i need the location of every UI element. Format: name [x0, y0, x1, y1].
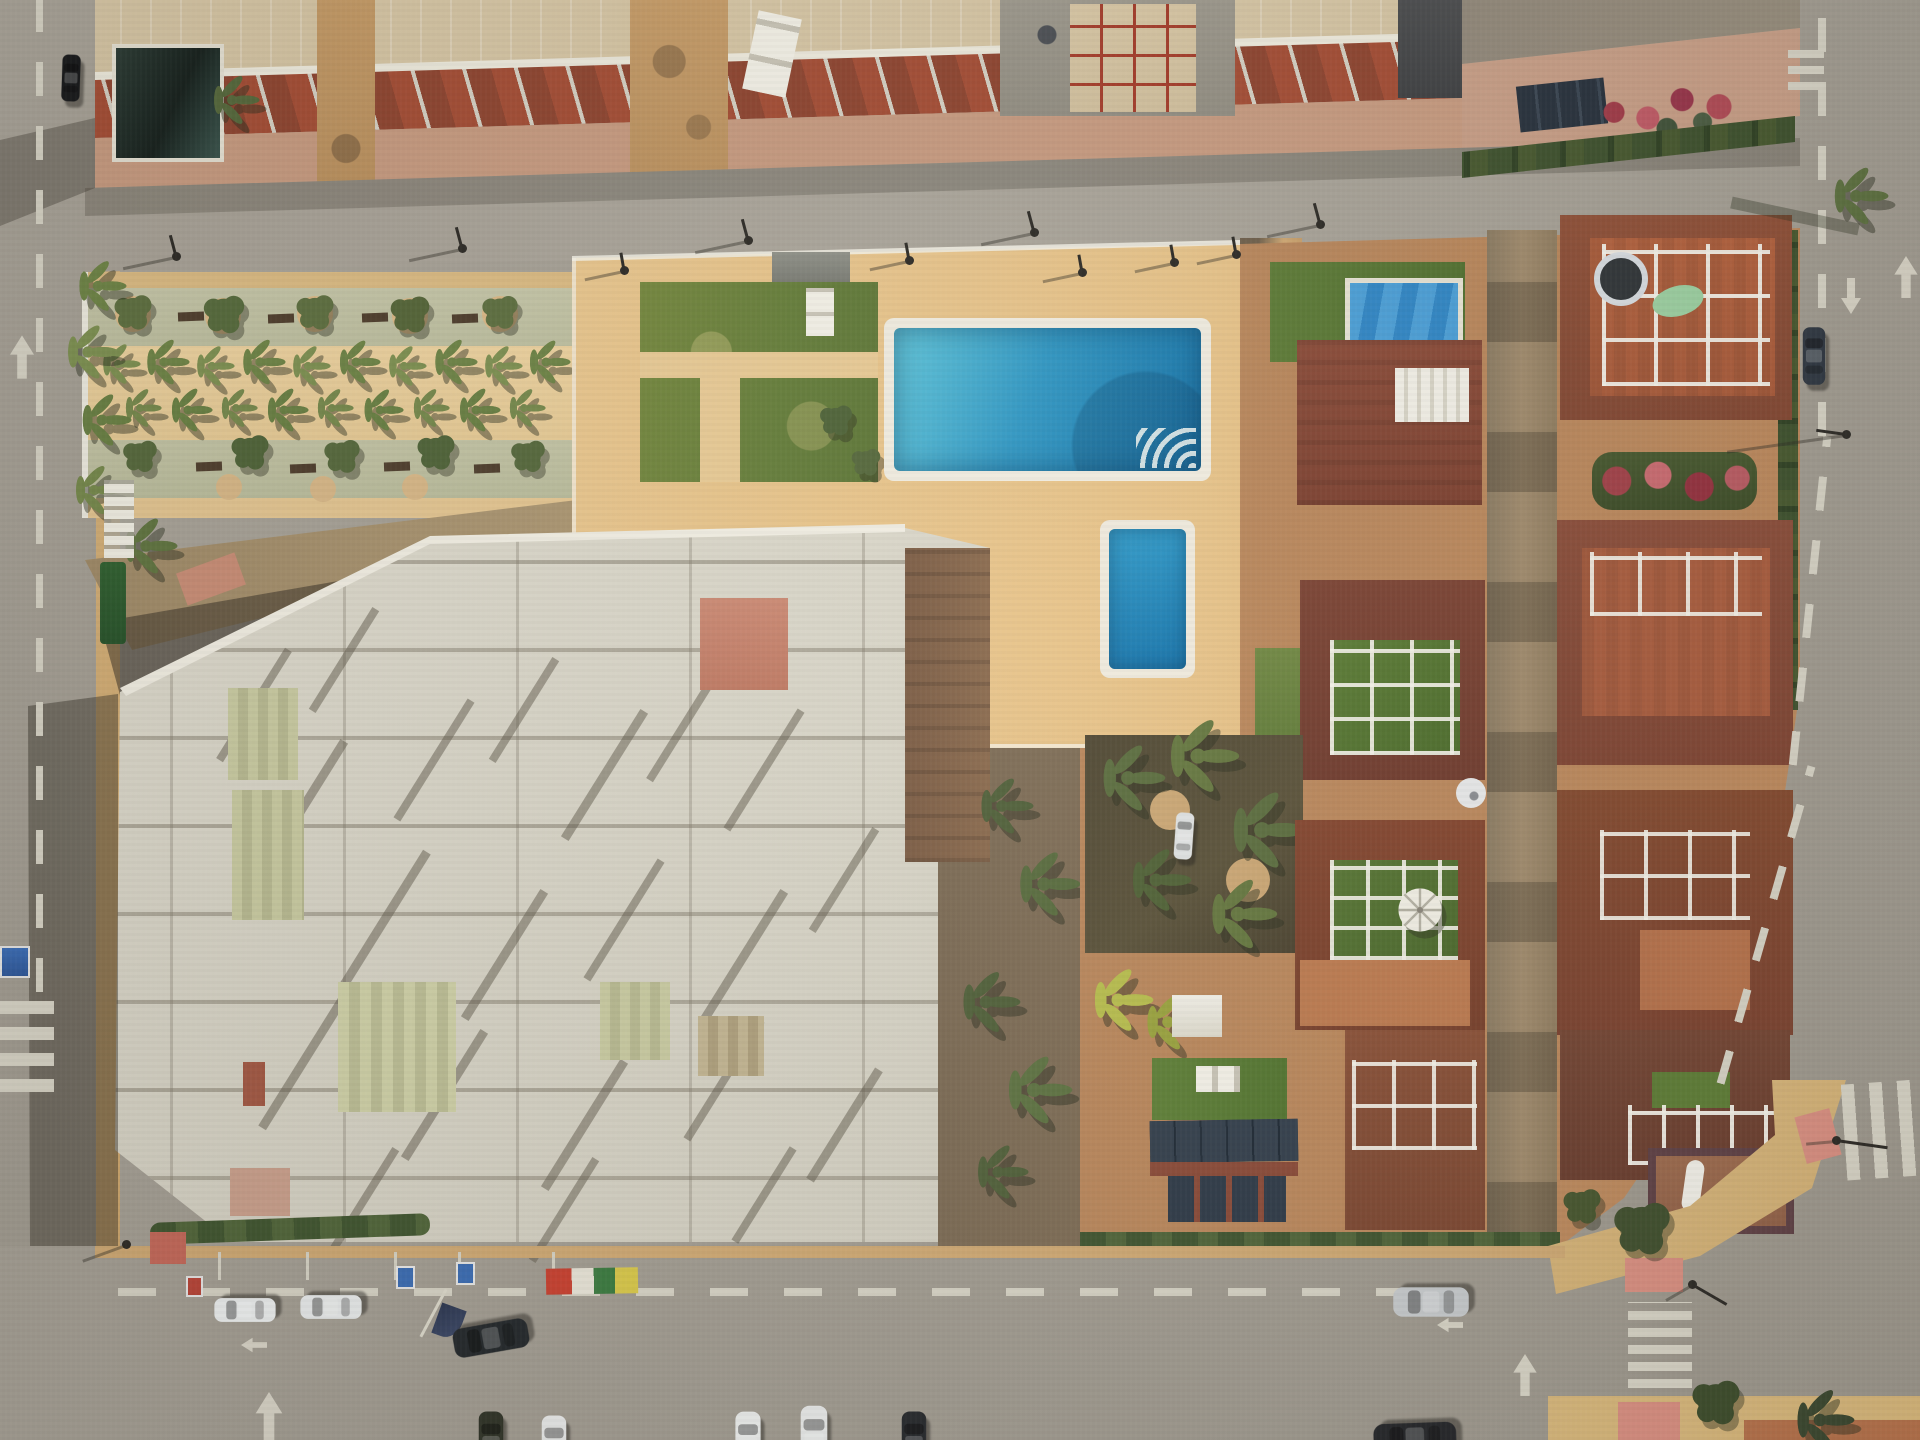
- photo-grain: [0, 0, 1920, 1440]
- aerial-photo-residential-neighborhood: [0, 0, 1920, 1440]
